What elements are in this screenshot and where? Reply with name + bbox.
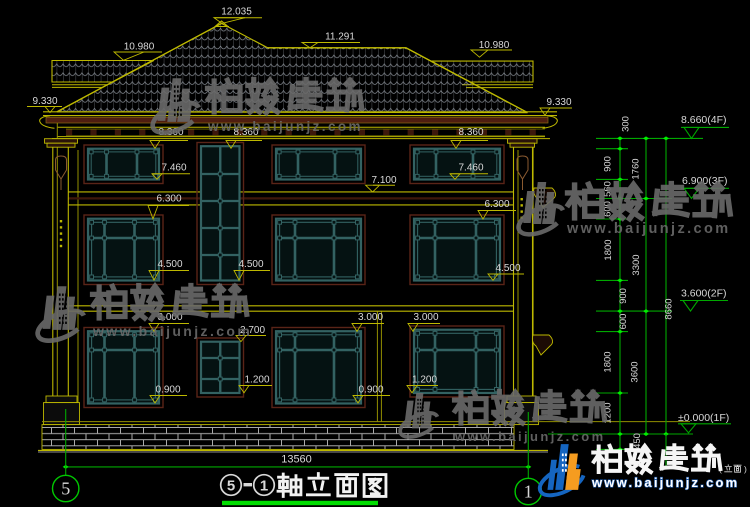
- svg-text:600: 600: [618, 314, 629, 330]
- svg-text:±0.000(1F): ±0.000(1F): [678, 412, 729, 424]
- svg-text:4.500: 4.500: [238, 259, 263, 270]
- svg-text:900: 900: [618, 288, 629, 304]
- svg-text:300: 300: [621, 116, 632, 132]
- svg-text:8.660(4F): 8.660(4F): [681, 114, 727, 126]
- svg-text:9.330: 9.330: [32, 96, 57, 107]
- svg-text:): ): [744, 464, 747, 474]
- svg-text:7.460: 7.460: [458, 163, 483, 174]
- svg-text:1800: 1800: [603, 351, 614, 372]
- svg-text:7.460: 7.460: [161, 163, 186, 174]
- svg-text:www.baijunjz.com: www.baijunjz.com: [92, 323, 252, 339]
- svg-text:7.100: 7.100: [371, 175, 396, 186]
- svg-text:450: 450: [632, 433, 643, 449]
- svg-text:5: 5: [227, 478, 235, 495]
- svg-text:10.980: 10.980: [479, 40, 510, 51]
- svg-text:6.300: 6.300: [484, 199, 509, 210]
- svg-text:www.baijunjz.com: www.baijunjz.com: [566, 221, 731, 237]
- svg-text:4.500: 4.500: [495, 263, 520, 274]
- svg-text:3600: 3600: [630, 361, 641, 382]
- svg-text:11.291: 11.291: [325, 32, 355, 43]
- svg-text:13560: 13560: [281, 454, 312, 466]
- svg-text:8.360: 8.360: [458, 127, 483, 138]
- svg-text:3300: 3300: [631, 254, 642, 275]
- svg-text:0.900: 0.900: [358, 385, 383, 396]
- svg-text:900: 900: [603, 156, 614, 172]
- svg-text:4.500: 4.500: [157, 259, 182, 270]
- svg-text:3.000: 3.000: [413, 312, 438, 323]
- svg-text:1.200: 1.200: [244, 375, 269, 386]
- svg-text:9.330: 9.330: [546, 97, 571, 108]
- svg-text:5: 5: [61, 479, 70, 499]
- svg-text:12.035: 12.035: [221, 7, 252, 18]
- svg-text:1800: 1800: [603, 239, 614, 260]
- svg-text:0.900: 0.900: [155, 385, 180, 396]
- svg-text:www.baijunjz.com: www.baijunjz.com: [454, 429, 606, 444]
- svg-text:www.baijunjz.com: www.baijunjz.com: [591, 475, 739, 490]
- svg-text:3.600(2F): 3.600(2F): [681, 288, 727, 300]
- svg-text:10.980: 10.980: [124, 42, 155, 53]
- svg-text:1.200: 1.200: [412, 375, 437, 386]
- svg-text:6.300: 6.300: [156, 194, 181, 205]
- svg-text:3.000: 3.000: [358, 312, 383, 323]
- svg-text:1: 1: [260, 478, 268, 495]
- svg-text:1: 1: [524, 482, 533, 502]
- svg-text:www.baijunjz.com: www.baijunjz.com: [207, 119, 363, 134]
- svg-text:8660: 8660: [664, 298, 675, 319]
- svg-text:1760: 1760: [631, 158, 642, 179]
